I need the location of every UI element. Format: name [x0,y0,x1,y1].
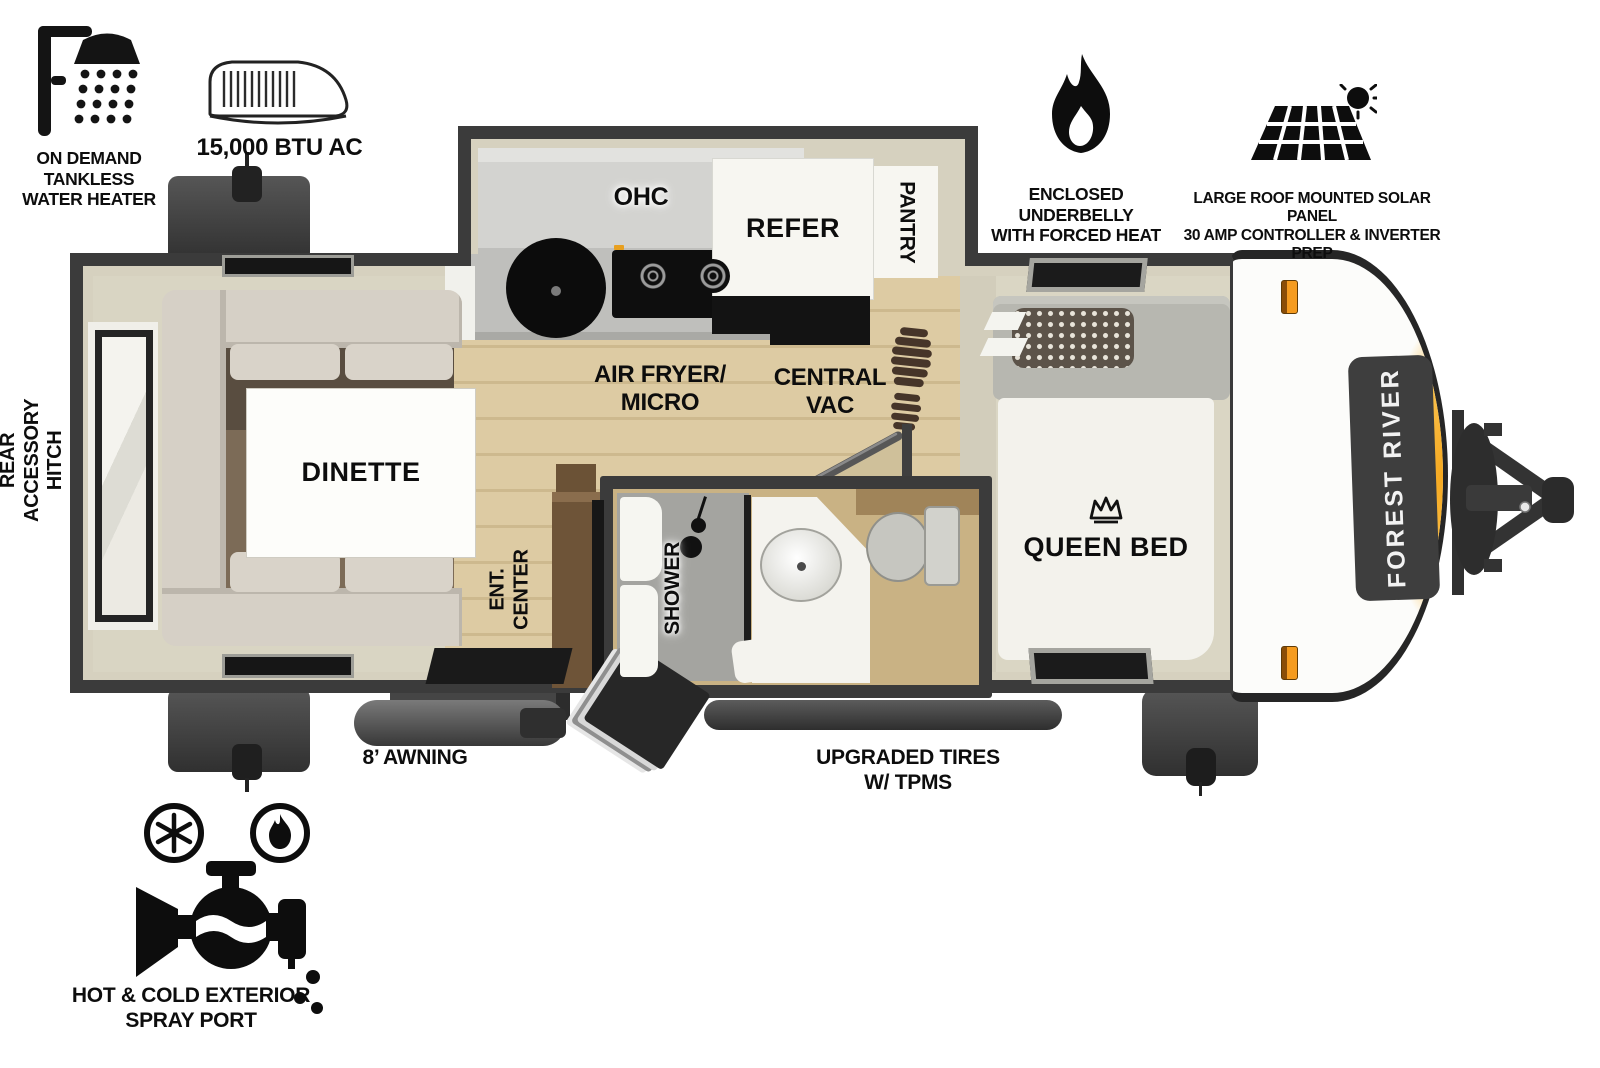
spray-port-line2: SPRAY PORT [60,1009,322,1034]
bathroom-upper-cabinet [856,489,979,515]
solar-label-box: LARGE ROOF MOUNTED SOLAR PANEL 30 AMP CO… [1182,190,1442,263]
solar-line2: 30 AMP CONTROLLER & INVERTER PREP [1182,227,1442,264]
shower-label: SHOWER [661,542,686,635]
brand-panel: FOREST RIVER [1348,355,1440,602]
underbelly-line2: WITH FORCED HEAT [976,225,1176,246]
rear-hitch-label-box: REAR ACCESSORY HITCH [0,372,66,548]
dinette-seat-cushion-bottom-left [230,552,340,592]
central-vac-line1: CENTRAL [774,364,887,392]
pantry: PANTRY [874,166,938,278]
tires-line1: UPGRADED TIRES [808,746,1008,771]
air-fryer-label-box: AIR FRYER/ MICRO [560,358,760,420]
underbelly-label-box: ENCLOSED UNDERBELLY WITH FORCED HEAT [976,184,1176,246]
snowflake-glyph [158,815,190,851]
cooktop-burner-left [636,259,670,293]
rear-hitch-line2: ACCESSORY [21,398,45,521]
crown-icon [1086,494,1126,526]
water-heater-line2: TANKLESS [3,169,175,190]
hitch-bolt [1520,502,1530,512]
queen-bed-mattress: QUEEN BED [998,398,1214,660]
bedroom-vent-bottom [1028,648,1153,684]
air-fryer-line1: AIR FRYER/ [594,361,726,389]
stabilizer-tab-bottom-left [232,744,262,780]
folded-linen-bottom [980,338,1028,356]
stabilizer-stem-bottom-right [1199,782,1202,796]
ohc-label: OHC [614,183,669,213]
vanity-toekick [730,634,799,684]
awning-roller-end [520,708,566,738]
awning-label: 8’ AWNING [340,746,490,771]
toilet-bowl [866,512,930,582]
tires-line2: W/ TPMS [808,771,1008,796]
axle-bar [704,700,1062,730]
frame-stub-bottom [1484,559,1502,572]
dinette-table: DINETTE [246,388,476,558]
forced-heat-icon [1036,52,1126,164]
dinette-seat-cushion-bottom-right [345,552,453,592]
ac-label: 15,000 BTU AC [182,134,377,162]
toilet-tank [924,506,960,586]
refer-label: REFER [746,213,840,245]
cooktop-burner-right [696,259,730,293]
bolster-pillow [1012,308,1134,368]
central-vac-line2: VAC [806,392,854,420]
ent-center-screen [592,500,604,682]
dinette-label: DINETTE [301,457,420,489]
refrigerator: REFER [712,158,874,300]
water-heater-line1: ON DEMAND [3,148,175,169]
water-heater-label-box: ON DEMAND TANKLESS WATER HEATER [3,148,175,210]
coupler [1542,477,1574,523]
ent-center-label-box: ENT. CENTER [468,498,552,682]
ac-unit-icon [198,52,358,134]
dinette-sofa-back-bottom [162,588,462,646]
pantry-label: PANTRY [894,181,919,263]
refrigerator-vent-step [770,332,870,345]
marker-light-bottom [1281,646,1298,680]
flame-glyph [269,814,291,849]
bedroom-vent-top [1026,258,1148,292]
stabilizer-tab-top-left [232,166,262,202]
water-heater-icon [28,22,150,148]
underbelly-line1: ENCLOSED UNDERBELLY [976,184,1176,225]
marker-light-top [1281,280,1298,314]
floorplan-canvas: OHC REFER PANTRY AIR FRYER/ MICRO CENTRA… [0,0,1600,1068]
rear-hitch-line1: REAR [0,398,21,521]
tires-label-box: UPGRADED TIRES W/ TPMS [808,746,1008,796]
tongue-hitch-assembly [1440,395,1590,610]
dinette-seat-cushion-top-right [345,344,453,380]
frame-stub-top [1484,423,1502,436]
dinette-window-top [222,255,354,277]
ent-center-speaker [556,464,596,492]
solar-line1: LARGE ROOF MOUNTED SOLAR PANEL [1182,190,1442,227]
dinette-seat-cushion-top-left [230,344,340,380]
water-heater-line3: WATER HEATER [3,189,175,210]
air-fryer-line2: MICRO [621,389,700,417]
dinette-window-bottom [222,654,354,678]
sink-drain [551,286,561,296]
stabilizer-stem-bottom-left [245,778,249,792]
sink-drain-bath [797,562,806,571]
ent-center-line2: CENTER [510,550,534,630]
refrigerator-vent [712,296,870,334]
spray-port-line1: HOT & COLD EXTERIOR [60,984,322,1009]
cooktop-indicator-lights [614,245,624,250]
spray-port-label-box: HOT & COLD EXTERIOR SPRAY PORT [60,984,322,1034]
stabilizer-tab-bottom-right [1186,748,1216,786]
brand-label: FOREST RIVER [1375,367,1412,589]
rear-hitch-line3: HITCH [45,398,69,521]
solar-panel-icon [1245,84,1377,180]
ent-center-line1: ENT. [486,550,510,630]
shower-label-box: SHOWER [636,500,710,676]
rear-window [95,330,153,622]
queen-bed-label: QUEEN BED [1023,532,1188,564]
